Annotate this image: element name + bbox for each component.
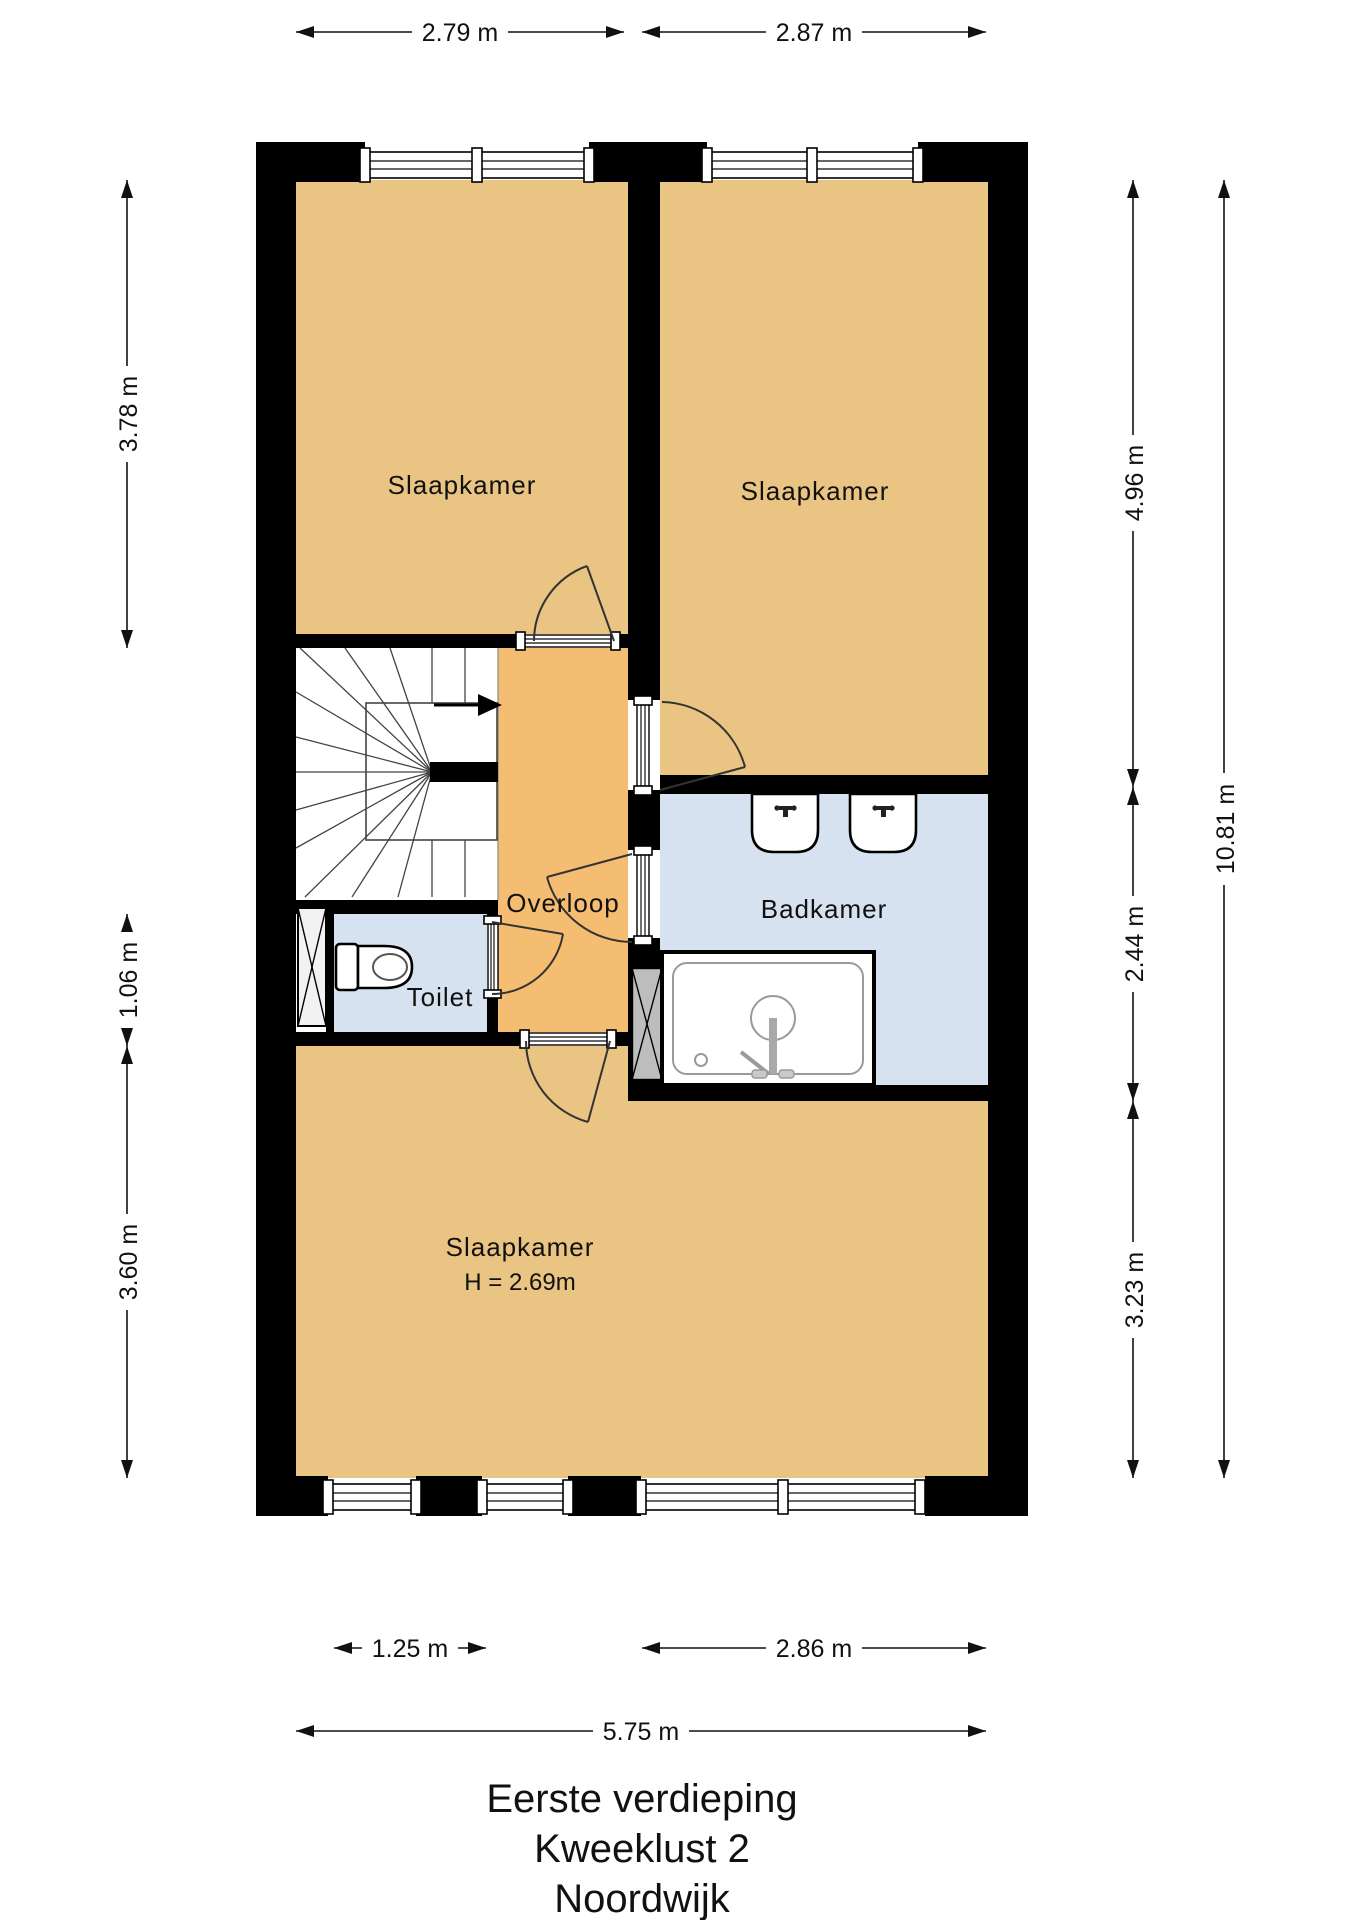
wall-landing-top-left [296, 634, 522, 648]
title-line-2: Kweeklust 2 [534, 1827, 750, 1871]
label-bedroom-bottom: Slaapkamer [446, 1232, 595, 1262]
wall-shaft-toilet-divider [326, 914, 334, 1032]
dim-top-287: 2.87 m [642, 14, 986, 48]
svg-text:3.23 m: 3.23 m [1121, 1252, 1149, 1328]
wall-bottom-pier-2 [416, 1476, 482, 1516]
dim-bottom-286: 2.86 m [642, 1630, 986, 1664]
wall-bathroom-bottom [628, 1085, 988, 1101]
title-line-3: Noordwijk [554, 1877, 731, 1920]
wall-spine-mid [628, 790, 660, 850]
dim-bottom-total-575: 5.75 m [296, 1713, 986, 1747]
title-line-1: Eerste verdieping [486, 1777, 797, 1821]
toilet-bowl [358, 946, 412, 988]
sink-right [850, 794, 916, 852]
room-landing [498, 648, 628, 1032]
wall-below-toilet [296, 1032, 526, 1046]
sink-left [752, 794, 818, 852]
label-bedroom-bottom-height: H = 2.69m [464, 1269, 575, 1296]
dim-right-496: 4.96 m [1116, 180, 1150, 787]
dim-left-378: 3.78 m [110, 180, 144, 648]
window-bottom-2 [477, 1480, 573, 1514]
wall-bottom-pier-4 [925, 1476, 1028, 1516]
toilet-fixture [336, 944, 412, 990]
wall-exterior-right [988, 142, 1028, 1516]
wall-bottom-pier-1 [256, 1476, 328, 1516]
window-bottom-3 [636, 1480, 925, 1514]
label-bedroom-top-right: Slaapkamer [741, 476, 890, 506]
label-bedroom-top-left: Slaapkamer [388, 470, 537, 500]
svg-text:1.25 m: 1.25 m [372, 1635, 448, 1663]
window-top-left [360, 148, 594, 182]
dim-top-279: 2.79 m [296, 14, 624, 48]
wall-top-pier-left [256, 142, 365, 182]
wall-top-pier-mid [589, 142, 707, 182]
label-bathroom: Badkamer [761, 894, 888, 924]
window-top-right [702, 148, 923, 182]
svg-text:2.44 m: 2.44 m [1121, 906, 1149, 982]
wall-spine-upper [628, 180, 660, 700]
window-bottom-1 [323, 1480, 421, 1514]
svg-text:10.81 m: 10.81 m [1212, 784, 1240, 874]
room-bedroom-bottom [296, 1046, 988, 1478]
dim-left-360: 3.60 m [110, 1046, 144, 1478]
staircase-rail-wall [430, 762, 498, 782]
svg-text:4.96 m: 4.96 m [1121, 445, 1149, 521]
floor-plan-page: Slaapkamer Slaapkamer Overloop Badkamer … [0, 0, 1358, 1920]
dim-bottom-125: 1.25 m [334, 1630, 486, 1664]
svg-text:2.79 m: 2.79 m [422, 19, 498, 47]
svg-text:1.06 m: 1.06 m [115, 942, 143, 1018]
dim-right-total-1081: 10.81 m [1207, 180, 1241, 1478]
wall-bathroom-top [660, 775, 988, 794]
shaft-toilet [298, 908, 326, 1026]
shaft-bathroom [632, 968, 662, 1080]
staircase [296, 648, 502, 900]
dim-left-106: 1.06 m [110, 914, 144, 1046]
dim-right-244: 2.44 m [1116, 787, 1150, 1101]
floor-plan-drawing: Slaapkamer Slaapkamer Overloop Badkamer … [0, 0, 1358, 1920]
title-block: Eerste verdieping Kweeklust 2 Noordwijk [486, 1777, 797, 1920]
svg-text:2.87 m: 2.87 m [776, 19, 852, 47]
shower [662, 952, 874, 1085]
wall-top-pier-right [918, 142, 1028, 182]
wall-bottom-pier-3 [568, 1476, 641, 1516]
toilet-tank [336, 944, 358, 990]
label-toilet: Toilet [407, 982, 474, 1012]
wall-exterior-left [256, 142, 296, 1516]
svg-text:3.78 m: 3.78 m [115, 376, 143, 452]
svg-text:3.60 m: 3.60 m [115, 1224, 143, 1300]
svg-text:5.75 m: 5.75 m [603, 1718, 679, 1746]
dim-right-323: 3.23 m [1116, 1101, 1150, 1478]
room-bedroom-top-left [296, 180, 628, 634]
label-landing: Overloop [506, 888, 620, 918]
shower-riser [769, 1018, 777, 1074]
svg-text:2.86 m: 2.86 m [776, 1635, 852, 1663]
